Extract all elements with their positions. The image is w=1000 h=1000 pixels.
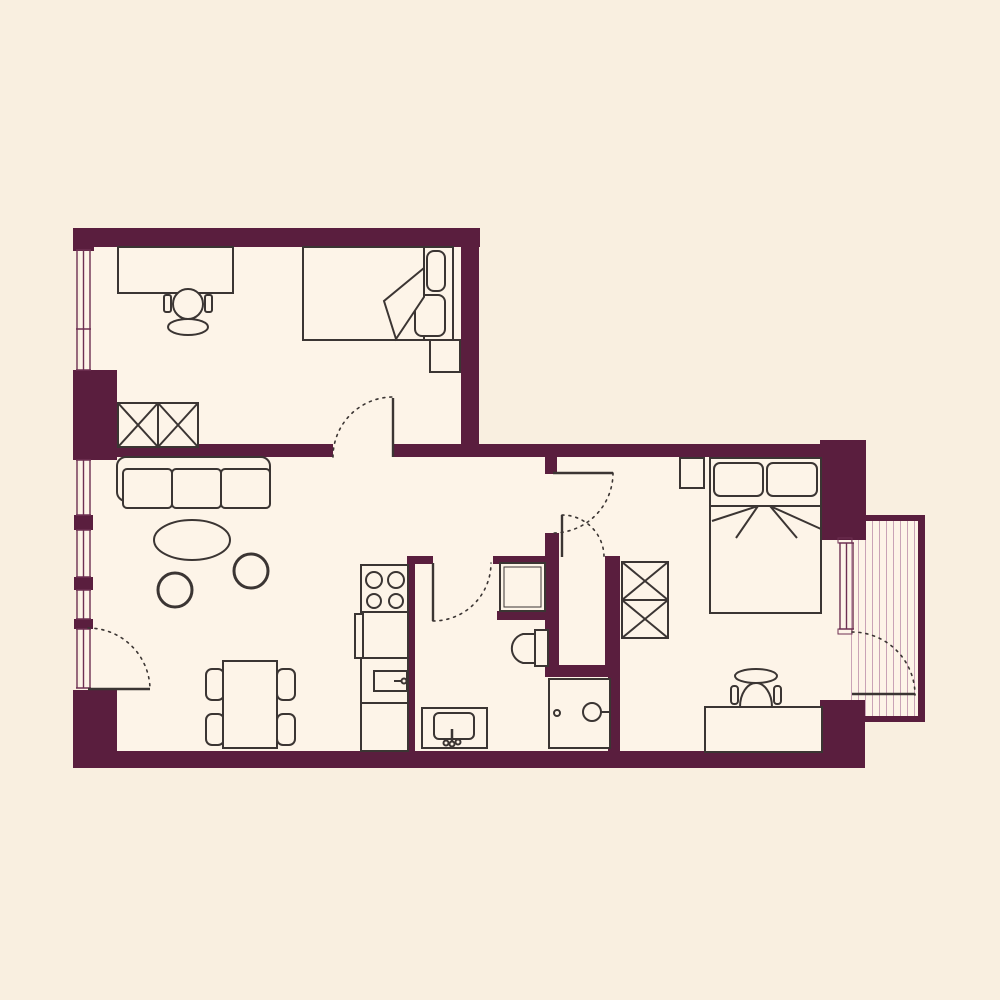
sink-knob-3 [456,740,461,745]
wall-left-block [73,370,117,460]
wall-left-corner-top [73,228,94,251]
wall-shower-bottom [497,611,549,620]
toilet-tank [535,630,548,666]
dining-table [223,661,277,748]
stove-burner-2 [388,572,404,588]
bedroom-nightstand [680,458,704,488]
wall-mid-right [393,444,822,457]
bedroom-chair-back [735,669,777,683]
balcony-floor [845,517,921,719]
stove-burner-3 [367,594,381,608]
sofa-cushion-2 [172,469,221,508]
oven-handle [355,614,363,658]
dining-chair-r1 [277,669,295,700]
sofa-cushion-1 [123,469,172,508]
wall-bedroom-west [605,556,620,677]
washer-knob [554,710,560,716]
dining-chair-r2 [277,714,295,745]
sink-knob-1 [444,741,449,746]
pouf-1 [234,554,268,588]
bedroom-chair-arm-l [731,686,738,704]
wall-bathdoor-left [407,556,433,564]
office-nightstand [430,340,460,372]
dining-chair-l1 [206,669,224,700]
sofa-cushion-3 [221,469,270,508]
wall-ne-block [820,440,866,540]
wall-se-block [820,700,865,768]
bedroom-chair-arm-r [774,686,781,704]
stove-burner-1 [366,572,382,588]
washer-door [583,703,601,721]
pouf-2 [158,573,192,607]
balcony-parapet-bottom [845,716,925,722]
wall-office-right [461,247,479,457]
coffee-table [154,520,230,560]
stove-burner-4 [389,594,403,608]
wall-bottom [73,751,865,768]
office-chair-back [168,319,208,335]
balcony-parapet-top [866,515,925,521]
wall-left-small-1 [74,515,93,530]
wall-left-small-2 [74,577,93,590]
wall-bedroomdoor-stub [545,455,557,474]
sink-knob-2 [450,742,455,747]
balcony-parapet-right [918,515,925,722]
sink-basin [434,713,474,739]
double-bed-pillow-1 [714,463,763,496]
single-bed-pillow-1 [427,251,445,291]
wall-top [73,228,480,247]
office-desk [118,247,233,293]
microwave-knob [402,679,407,684]
office-chair-arm-right [205,295,212,312]
office-chair-arm-left [164,295,171,312]
double-bed-pillow-2 [767,463,817,496]
apartment-floor-plan [0,0,1000,1000]
toilet-bowl [512,634,535,663]
office-chair-seat [173,289,203,319]
floor-plan-image [0,0,1000,1000]
dining-chair-l2 [206,714,224,745]
bedroom-desk [705,707,822,752]
shower-tray-inner [504,567,541,607]
